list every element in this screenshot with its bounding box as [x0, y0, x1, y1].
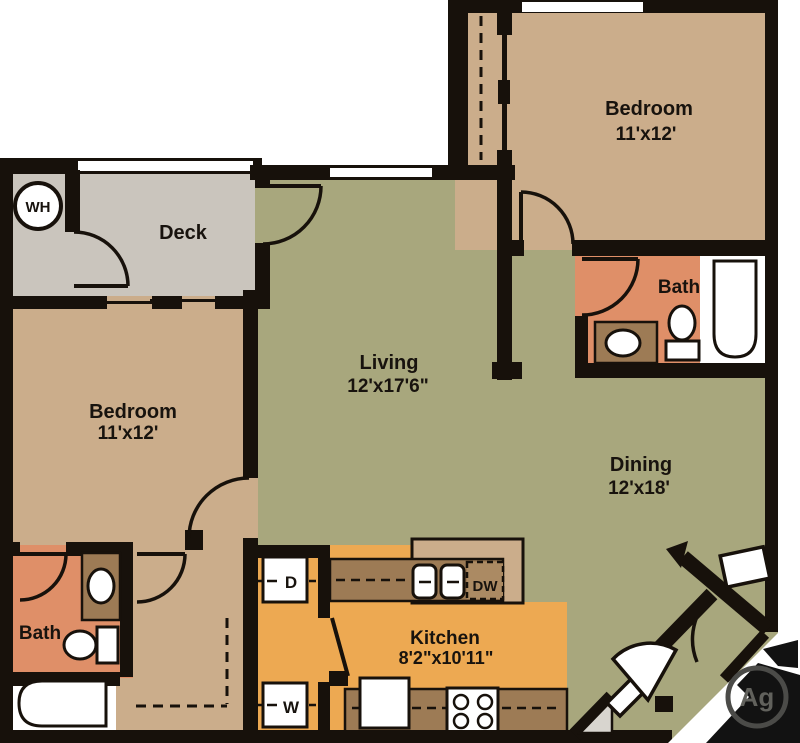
slider-panel-a: [105, 301, 155, 304]
floorplan-svg: WH D W DW Deck Bedroom 11'x12' Bath Livi…: [0, 0, 800, 743]
bath-upper-bottom-wall: [575, 363, 778, 378]
bath-lower-top-wall-a: [0, 542, 20, 556]
bottom-outer-wall: [0, 730, 672, 743]
bifold-door-stub: [655, 696, 673, 712]
deck-floor: [8, 158, 262, 304]
dining-dims: 12'x18': [608, 478, 670, 499]
bedroom-tr-dims: 11'x12': [616, 124, 677, 145]
closet-partition-bottom: [497, 150, 512, 180]
closet-partition-stub: [498, 80, 510, 104]
bath-upper-toilet: [666, 306, 699, 360]
deck-bottom-wall-c: [215, 296, 270, 309]
left-outer-wall: [0, 158, 13, 743]
deck-bottom-wall-a: [0, 296, 107, 309]
living-label: Living: [360, 352, 419, 374]
bath-lower-right-wall: [120, 545, 133, 677]
bath-upper-vanity: [595, 322, 657, 363]
dining-label: Dining: [610, 454, 672, 476]
laundry-door-jamb: [329, 671, 348, 686]
water-heater: WH: [15, 183, 61, 229]
dryer: D: [257, 557, 316, 602]
bedroom-left-label: Bedroom: [89, 401, 177, 423]
living-hall-divider-wall: [497, 178, 512, 380]
divider-wall-cap: [492, 362, 522, 379]
refrigerator: [360, 678, 409, 728]
dishwasher-label: DW: [473, 578, 499, 595]
ag-watermark-text: Ag: [740, 682, 775, 712]
slider-panel-b: [150, 299, 218, 302]
right-outer-wall: [765, 0, 778, 632]
bath-upper-label: Bath: [658, 277, 700, 298]
laundry-right-wall-lower: [318, 682, 330, 738]
bath-lower-vanity: [82, 553, 120, 620]
bedroom-left-dims: 11'x12': [98, 423, 159, 444]
entry-closet-shelf: [720, 547, 770, 587]
kitchen-dims: 8'2"x10'11": [399, 648, 494, 668]
water-heater-label: WH: [26, 199, 51, 216]
dining-floor-patch: [523, 540, 567, 602]
bedroom-block-left-wall: [448, 0, 468, 180]
right-margin: [778, 0, 800, 743]
laundry-right-wall-upper: [318, 545, 330, 618]
dryer-label: D: [285, 573, 297, 592]
wh-closet-wall: [65, 170, 80, 232]
bedroom-left-right-wall-upper: [243, 290, 258, 478]
living-dims: 12'x17'6": [347, 376, 428, 397]
living-window: [330, 168, 432, 177]
floorplan-image: WH D W DW Deck Bedroom 11'x12' Bath Livi…: [0, 0, 800, 743]
bedroom-bottom-wall: [572, 240, 778, 256]
bedroom-window: [522, 2, 643, 12]
bath-lower-label: Bath: [19, 623, 61, 644]
bath-upper-tub: [714, 261, 756, 357]
kitchen-label: Kitchen: [410, 628, 480, 649]
deck-window: [78, 161, 253, 171]
washer-label: W: [283, 698, 300, 717]
closet-partition-top: [497, 0, 512, 35]
bedroom-left-right-wall-lower: [243, 538, 258, 743]
washer: W: [257, 683, 316, 727]
deck-bottom-wall-b: [152, 296, 182, 309]
bath-lower-tub: [19, 681, 106, 726]
deck-label: Deck: [159, 222, 208, 244]
bedroom-tr-label: Bedroom: [605, 98, 693, 120]
